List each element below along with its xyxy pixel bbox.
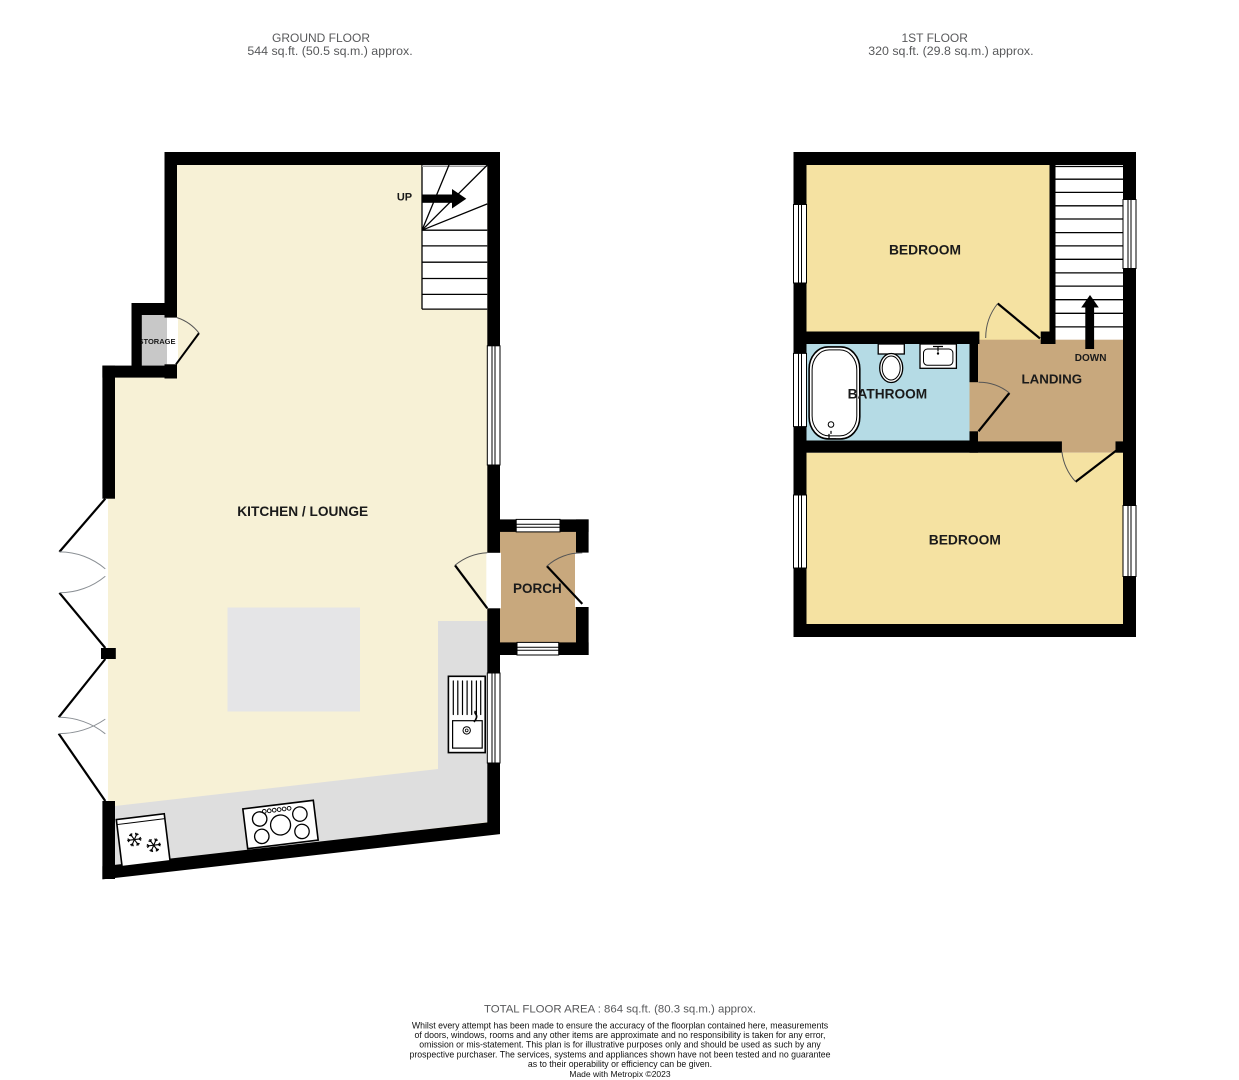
svg-text:GROUND FLOOR: GROUND FLOOR [272, 31, 370, 45]
svg-text:1ST FLOOR: 1ST FLOOR [901, 31, 968, 45]
svg-text:KITCHEN / LOUNGE: KITCHEN / LOUNGE [237, 504, 368, 519]
svg-text:prospective purchaser. The ser: prospective purchaser. The services, sys… [409, 1050, 830, 1060]
svg-text:PORCH: PORCH [513, 581, 562, 596]
svg-text:BATHROOM: BATHROOM [848, 387, 928, 402]
svg-text:DOWN: DOWN [1075, 353, 1107, 364]
svg-text:320 sq.ft. (29.8 sq.m.) approx: 320 sq.ft. (29.8 sq.m.) approx. [868, 44, 1033, 58]
svg-text:TOTAL FLOOR AREA : 864 sq.ft.: TOTAL FLOOR AREA : 864 sq.ft. (80.3 sq.m… [484, 1003, 756, 1015]
svg-text:STORAGE: STORAGE [139, 337, 176, 346]
svg-text:Whilst every attempt has been: Whilst every attempt has been made to en… [412, 1021, 829, 1031]
svg-text:BEDROOM: BEDROOM [889, 243, 961, 258]
svg-text:of doors, windows, rooms and a: of doors, windows, rooms and any other i… [415, 1030, 826, 1040]
svg-text:544 sq.ft. (50.5 sq.m.) approx: 544 sq.ft. (50.5 sq.m.) approx. [247, 44, 412, 58]
svg-text:as to their operability or eff: as to their operability or efficiency ca… [528, 1059, 712, 1069]
svg-text:LANDING: LANDING [1022, 371, 1083, 386]
svg-text:BEDROOM: BEDROOM [929, 532, 1001, 547]
svg-text:UP: UP [397, 192, 412, 204]
svg-text:omission or mis-statement. Thi: omission or mis-statement. This plan is … [419, 1040, 821, 1050]
svg-text:Made with Metropix ©2023: Made with Metropix ©2023 [569, 1069, 671, 1079]
